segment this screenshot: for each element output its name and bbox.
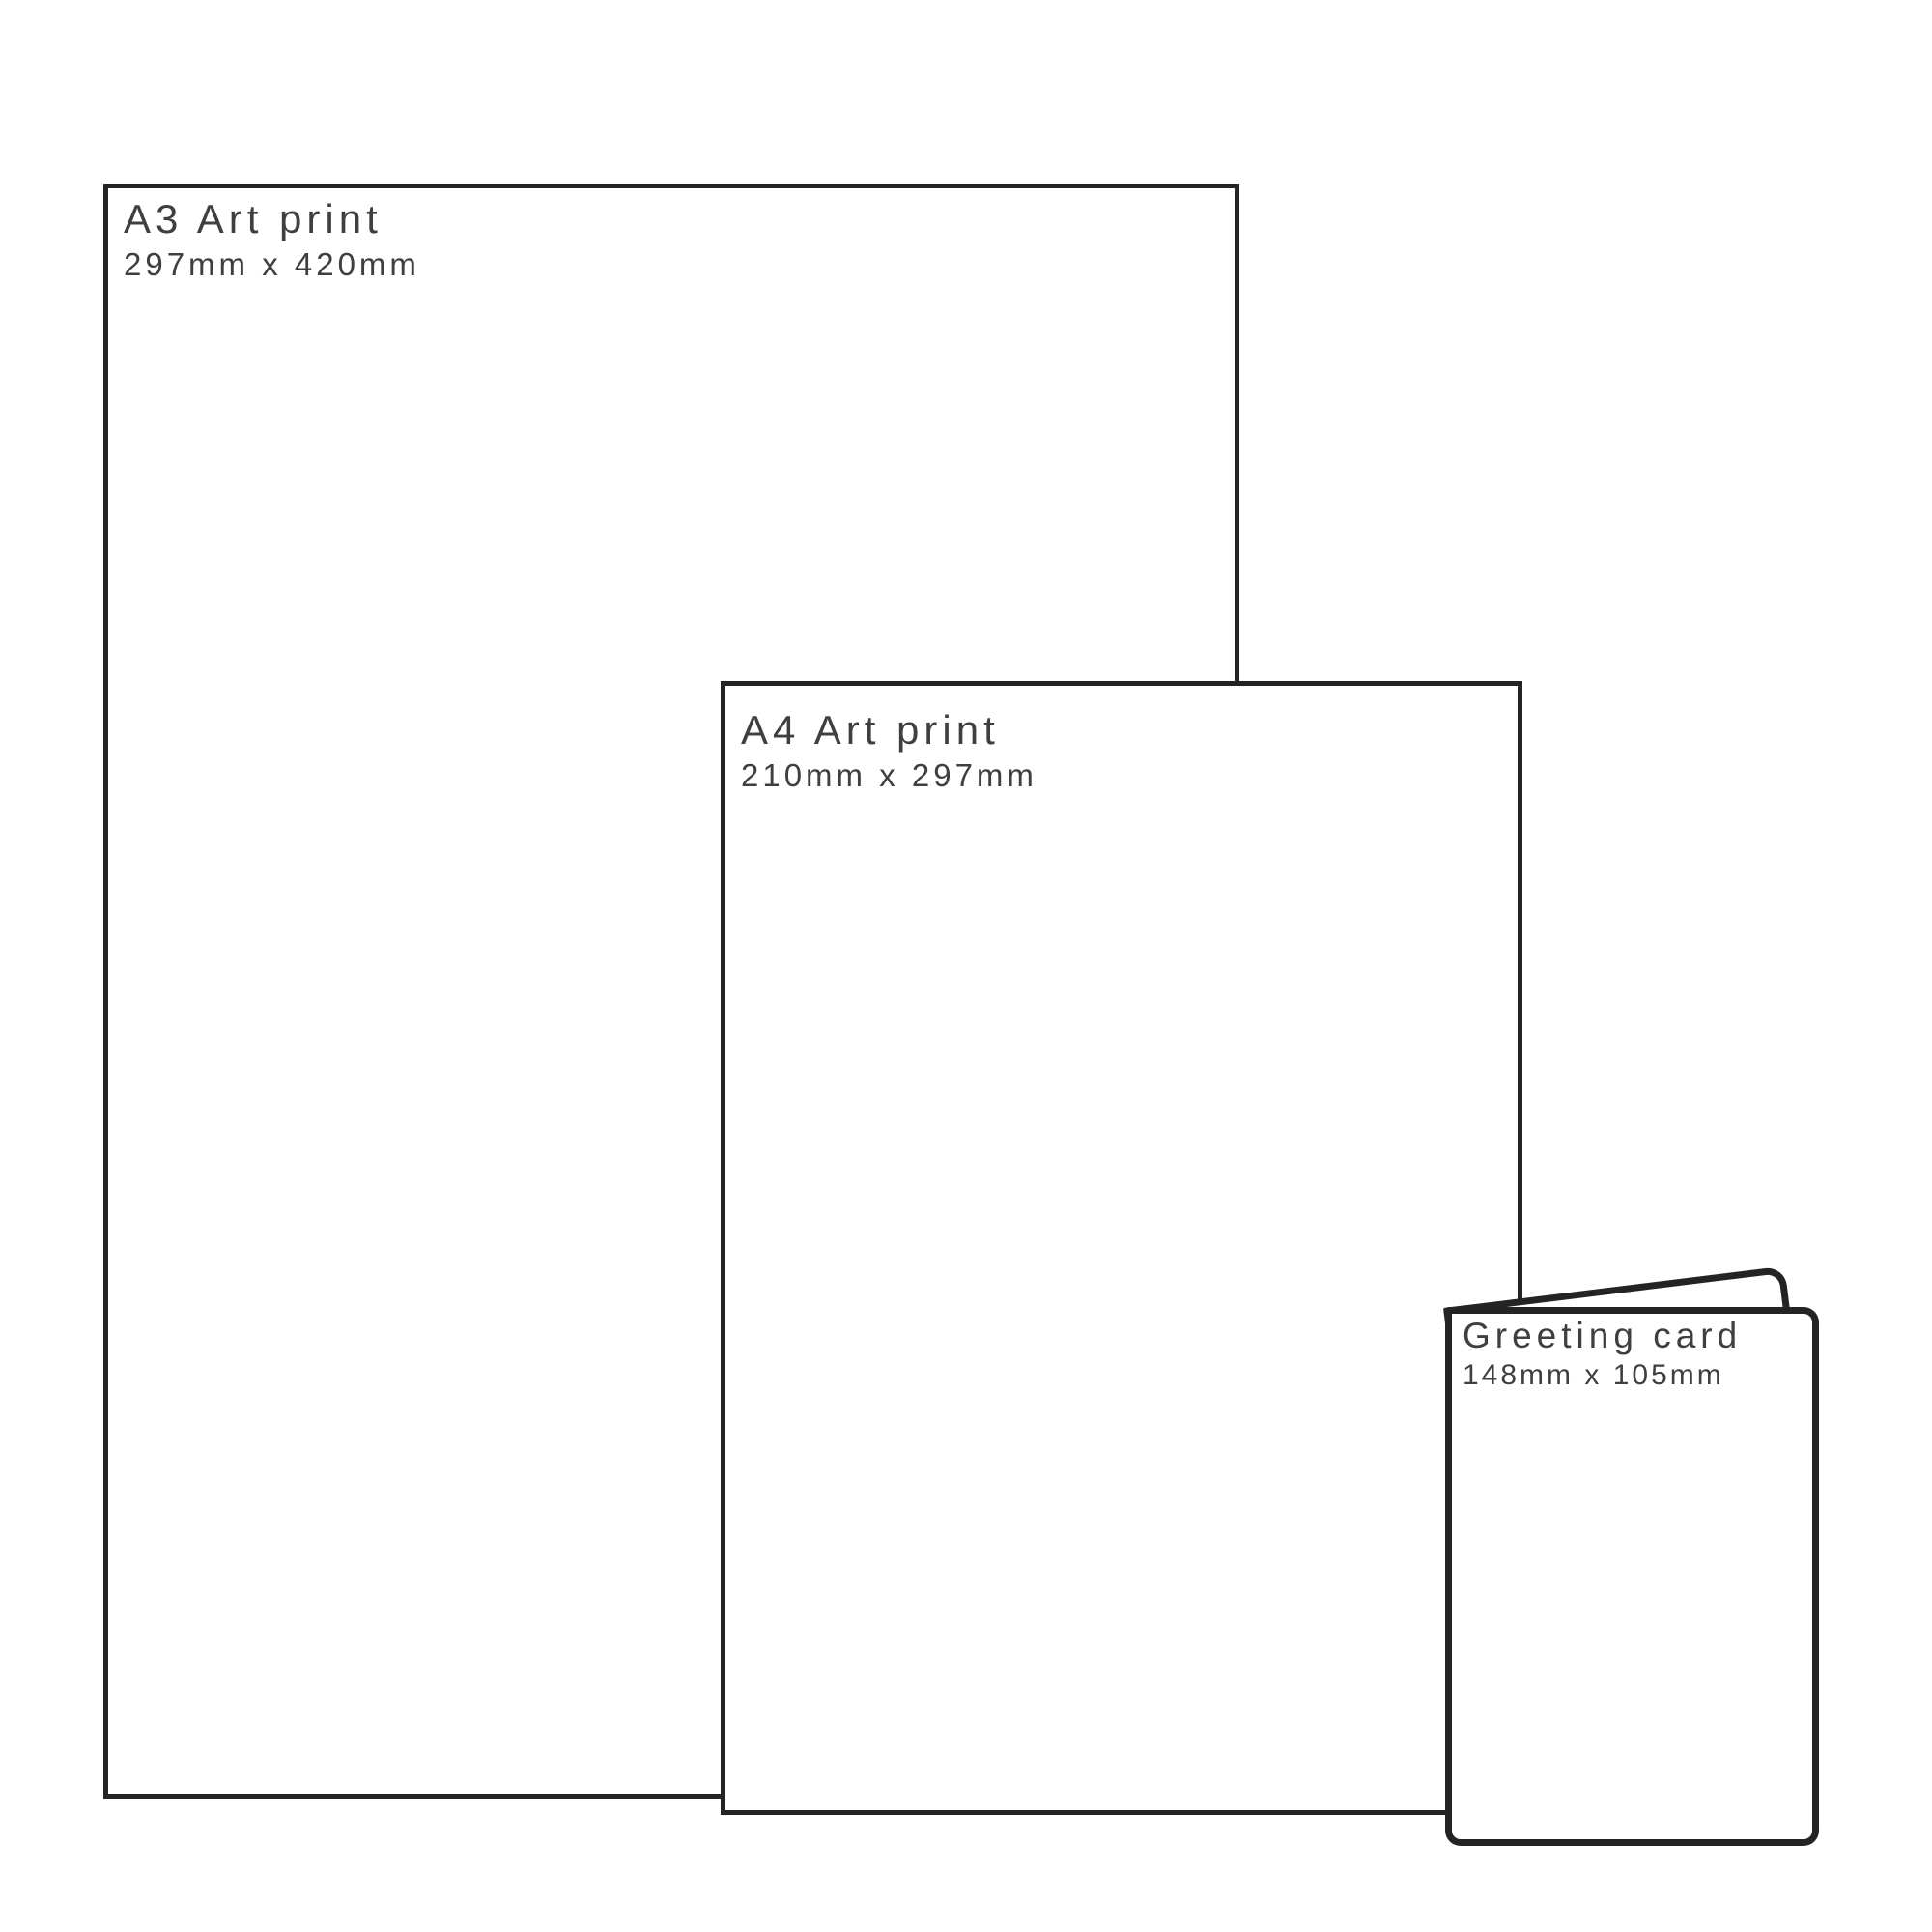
greeting-card-dimensions: 148mm x 105mm	[1463, 1359, 1806, 1393]
a3-title: A3 Art print	[124, 196, 1225, 242]
paper-size-comparison-diagram: A3 Art print 297mm x 420mm A4 Art print …	[0, 0, 1932, 1932]
a4-dimensions: 210mm x 297mm	[741, 757, 1508, 794]
greeting-card-title: Greeting card	[1463, 1316, 1806, 1357]
greeting-card-front: Greeting card 148mm x 105mm	[1445, 1307, 1819, 1846]
a4-label: A4 Art print 210mm x 297mm	[725, 686, 1518, 794]
a3-label: A3 Art print 297mm x 420mm	[108, 188, 1235, 283]
a4-art-print-sheet: A4 Art print 210mm x 297mm	[721, 681, 1522, 1815]
a3-dimensions: 297mm x 420mm	[124, 246, 1225, 283]
greeting-card-label: Greeting card 148mm x 105mm	[1452, 1314, 1812, 1392]
a4-title: A4 Art print	[741, 707, 1508, 753]
